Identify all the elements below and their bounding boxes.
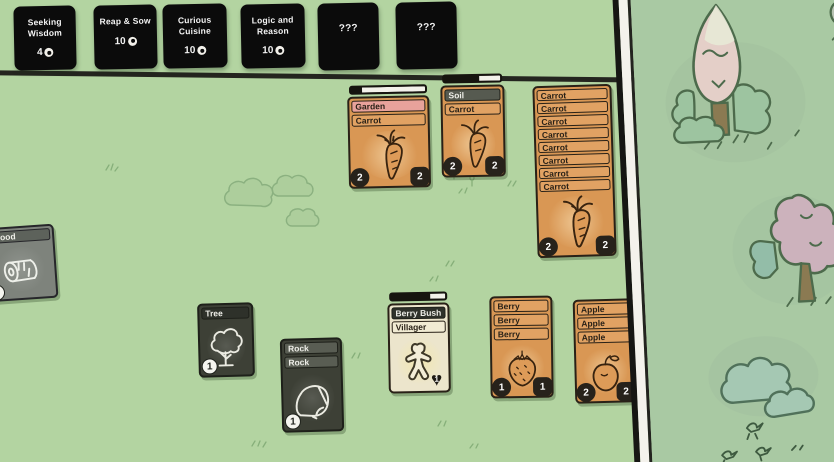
card-title-carrot[interactable]: Carrot	[538, 153, 609, 166]
coin-icon	[197, 46, 206, 55]
tree-card[interactable]: Tree 1	[197, 302, 255, 377]
quest-card-mystery-1[interactable]: ???	[317, 2, 379, 70]
value-badge: 1	[285, 413, 301, 429]
wood-card[interactable]: Wood	[0, 224, 58, 303]
quest-title: Reap & Sow	[94, 15, 157, 27]
quest-card-seeking-wisdom[interactable]: Seeking Wisdom 4	[13, 5, 76, 70]
quest-card-curious-cuisine[interactable]: Curious Cuisine 10	[162, 3, 227, 68]
quest-card-reap-and-sow[interactable]: Reap & Sow 10	[93, 4, 157, 69]
card-title-carrot[interactable]: Carrot	[539, 166, 610, 179]
food-value-badge: 2	[487, 157, 503, 173]
bush-top-right	[829, 0, 834, 44]
food-value-badge: 2	[412, 168, 428, 184]
coin-icon	[128, 36, 137, 45]
berrybush-progress-bar	[389, 292, 447, 302]
birds	[720, 421, 803, 462]
card-title-carrot[interactable]: Carrot	[536, 88, 607, 101]
soil-progress-bar	[442, 73, 502, 83]
quest-card-mystery-2[interactable]: ???	[395, 1, 457, 69]
quest-card-logic-and-reason[interactable]: Logic and Reason 10	[240, 3, 305, 68]
quest-title: Logic and Reason	[241, 14, 305, 37]
quest-cost: 10	[114, 36, 125, 47]
coin-value-badge: 1	[493, 379, 509, 395]
coin-icon	[44, 48, 53, 57]
card-title-apple[interactable]: Apple	[577, 302, 631, 315]
card-title-berry[interactable]: Berry	[494, 328, 549, 341]
game-screen: Seeking Wisdom 4 Reap & Sow 10 Curious C…	[0, 0, 834, 462]
card-title-berry[interactable]: Berry	[494, 314, 549, 327]
card-title-apple[interactable]: Apple	[577, 316, 631, 329]
right-scenery-panel	[612, 0, 834, 462]
health-heart-badge: ♥ 1	[426, 371, 446, 391]
soil-carrot-stack[interactable]: Soil Carrot 2 2	[440, 73, 506, 177]
rock-stack[interactable]: Rock Rock 1	[280, 337, 344, 433]
card-title-rock[interactable]: Rock	[284, 355, 338, 368]
berrybush-villager-stack[interactable]: Berry Bush Villager ♥ 1	[387, 291, 451, 393]
card-title-berry[interactable]: Berry	[493, 300, 548, 313]
quest-title: Seeking Wisdom	[14, 16, 76, 39]
card-title-carrot[interactable]: Carrot	[537, 101, 608, 114]
garden-carrot-stack[interactable]: Garden Carrot 2 2	[347, 84, 431, 189]
carrot-icon	[369, 129, 410, 184]
value-badge: 1	[201, 358, 217, 374]
board-top-edge	[0, 70, 654, 82]
card-title-garden[interactable]: Garden	[351, 99, 425, 113]
card-title-tree[interactable]: Tree	[201, 306, 249, 319]
card-title-carrot[interactable]: Carrot	[538, 140, 609, 153]
card-title-carrot[interactable]: Carrot	[352, 113, 426, 127]
quest-cost: 4	[37, 47, 43, 58]
coin-value-badge: 2	[352, 169, 368, 185]
quest-title: ???	[318, 22, 379, 36]
carrot-stack[interactable]: Carrot Carrot Carrot Carrot Carrot Carro…	[532, 84, 616, 258]
card-title-apple[interactable]: Apple	[577, 330, 631, 343]
log-icon	[0, 248, 45, 291]
card-title-villager[interactable]: Villager	[392, 321, 446, 334]
food-value-badge: 2	[597, 237, 613, 253]
card-title-rock[interactable]: Rock	[284, 341, 338, 354]
berry-stack[interactable]: Berry Berry Berry 1 1	[489, 296, 553, 399]
carrot-icon	[554, 194, 598, 251]
card-title-carrot[interactable]: Carrot	[537, 114, 608, 127]
garden-progress-bar	[349, 84, 427, 95]
card-title-carrot[interactable]: Carrot	[539, 179, 610, 192]
quest-title: Curious Cuisine	[163, 14, 227, 37]
coin-value-badge: 2	[540, 239, 556, 255]
quest-cost: 10	[184, 45, 195, 56]
coin-value-badge: 2	[578, 384, 594, 400]
quest-cost: 10	[262, 45, 273, 56]
coin-icon	[275, 46, 284, 55]
scenery-art	[629, 0, 834, 462]
scenery-background	[629, 0, 834, 462]
food-value-badge: 1	[534, 379, 550, 395]
card-title-carrot[interactable]: Carrot	[538, 127, 609, 140]
card-title-berry-bush[interactable]: Berry Bush	[391, 307, 445, 320]
quest-title: ???	[396, 21, 457, 35]
coin-value-badge: 2	[445, 158, 461, 174]
card-title-carrot[interactable]: Carrot	[445, 103, 501, 116]
card-title-soil[interactable]: Soil	[444, 89, 500, 102]
